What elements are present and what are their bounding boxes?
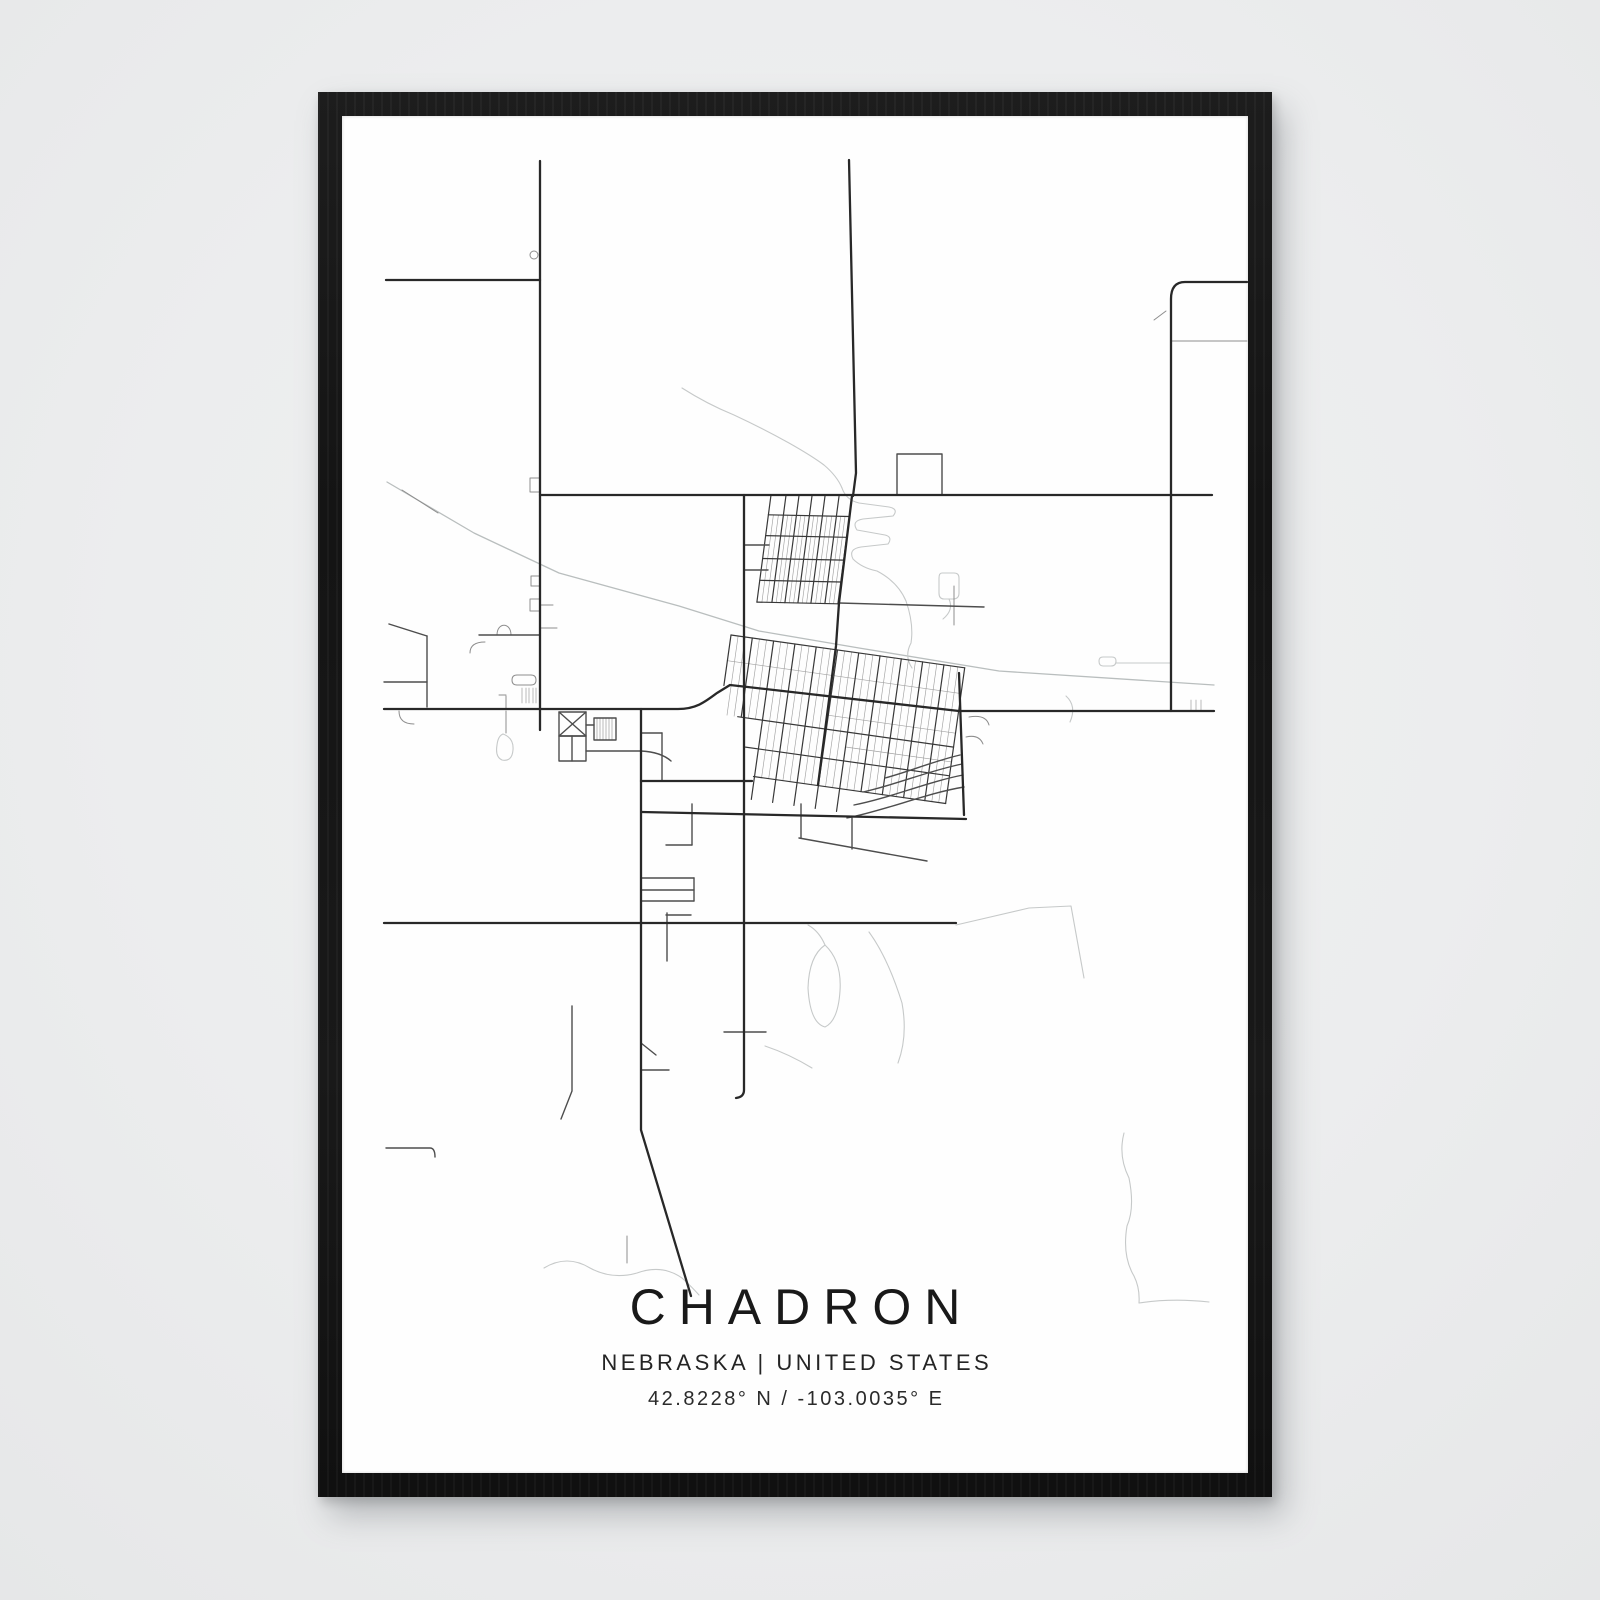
poster-coordinates: 42.8228° N / -103.0035° E — [342, 1388, 1248, 1411]
map-layer-medium — [384, 454, 984, 1157]
map-poster: CHADRON NEBRASKA | UNITED STATES 42.8228… — [342, 116, 1248, 1473]
map-layer-thin — [522, 688, 1201, 740]
city-street-map — [342, 116, 1248, 1473]
poster-title: CHADRON — [342, 1278, 1248, 1336]
product-scene: { "poster": { "title": "CHADRON", "subti… — [0, 0, 1600, 1600]
map-layer-water — [497, 388, 1209, 1303]
poster-frame: CHADRON NEBRASKA | UNITED STATES 42.8228… — [318, 92, 1272, 1497]
poster-subtitle: NEBRASKA | UNITED STATES — [342, 1350, 1248, 1376]
